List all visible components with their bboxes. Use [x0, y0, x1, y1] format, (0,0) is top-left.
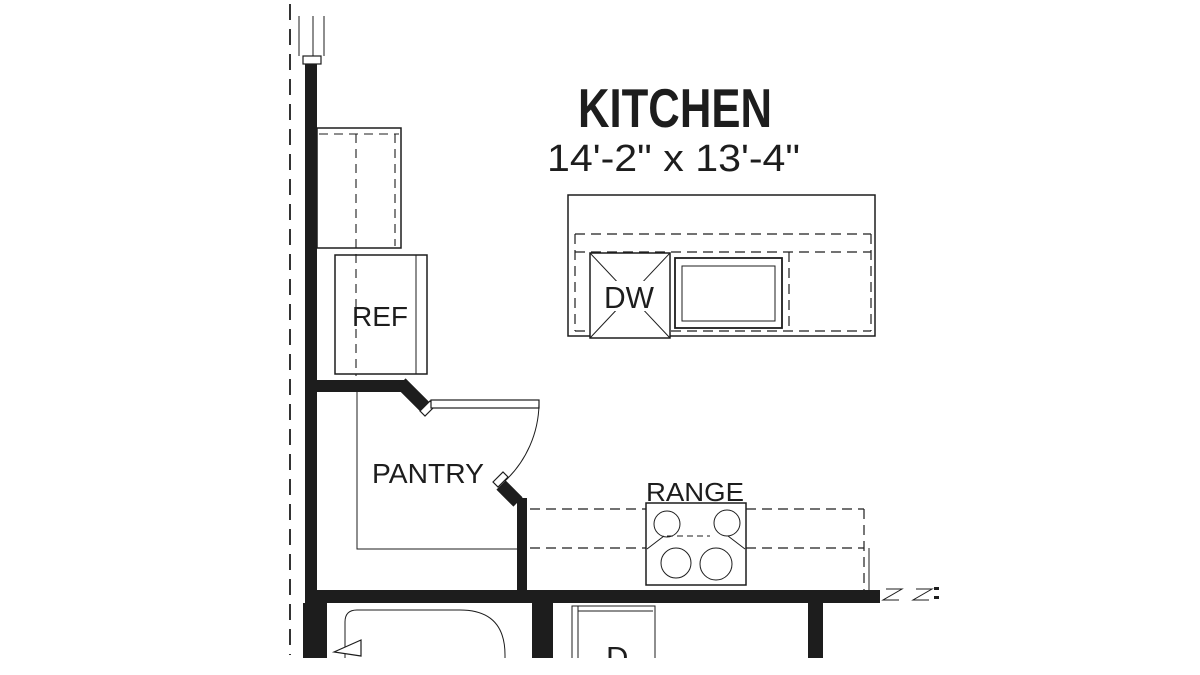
title-block: KITCHEN 14'-2" x 13'-4" — [547, 77, 800, 180]
door-swing-arc — [505, 404, 539, 481]
door-leaf — [431, 400, 539, 408]
refrigerator-box: REF — [335, 255, 427, 374]
sheet-crop-mask — [0, 658, 1200, 675]
tub-faucet-icon — [334, 640, 361, 656]
wall-break-icon — [883, 587, 939, 600]
floor-plan-sheet: REF PANTRY DW — [0, 0, 1200, 675]
wall-opening-symbol — [299, 16, 324, 64]
dishwasher-label: DW — [604, 280, 655, 315]
refrigerator-label: REF — [352, 301, 408, 332]
kitchen-floor-plan: REF PANTRY DW — [0, 0, 1200, 675]
pantry-area: PANTRY — [357, 392, 517, 549]
room-title: KITCHEN — [578, 77, 772, 139]
pantry-label: PANTRY — [372, 458, 484, 489]
sink — [675, 258, 782, 328]
kitchen-island: DW — [568, 195, 875, 338]
range: RANGE — [646, 477, 746, 585]
room-dimensions: 14'-2" x 13'-4" — [547, 138, 800, 180]
upper-cabinet — [317, 128, 401, 376]
bathtub — [334, 610, 505, 660]
dishwasher-box: DW — [590, 253, 670, 338]
range-box — [646, 503, 746, 585]
